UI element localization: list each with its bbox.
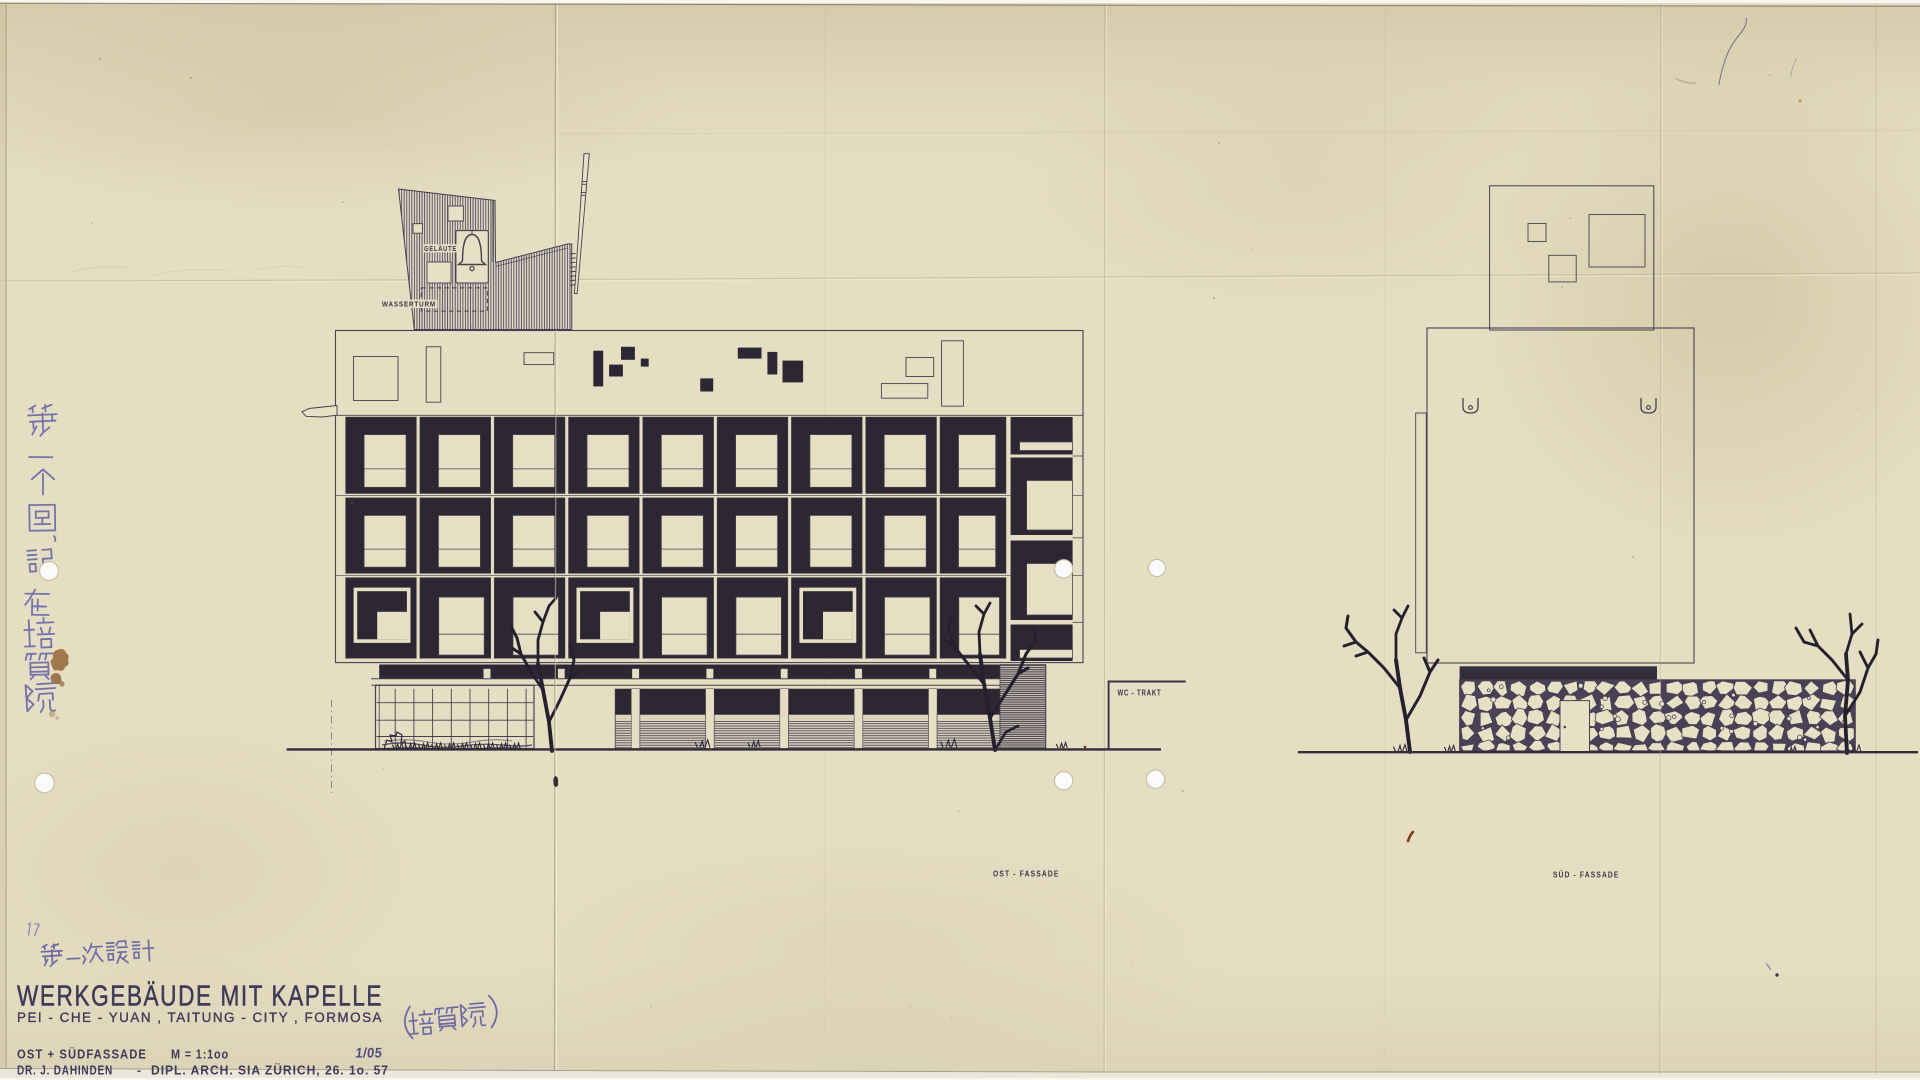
svg-text:PEI - CHE - YUAN , TAITUNG - C: PEI - CHE - YUAN , TAITUNG - CITY , FORM… [17,1010,383,1025]
svg-text:WASSERTURM: WASSERTURM [382,300,436,309]
svg-text:1/05: 1/05 [355,1045,384,1061]
svg-text:SÜD - FASSADE: SÜD - FASSADE [1553,871,1620,880]
svg-text:GELÄUTE: GELÄUTE [424,244,457,253]
svg-text:-: - [137,1064,141,1078]
svg-text:OST + SÜDFASSADE: OST + SÜDFASSADE [17,1047,147,1062]
svg-text:OST - FASSADE: OST - FASSADE [993,870,1060,879]
svg-text:M = 1:1oo: M = 1:1oo [171,1048,229,1062]
svg-text:DIPL. ARCH. SIA ZÜRICH, 26. 1: DIPL. ARCH. SIA ZÜRICH, 26. 1o. 57 [151,1063,389,1078]
svg-text:WC - TRAKT: WC - TRAKT [1118,688,1162,697]
svg-text:DR. J. DAHINDEN: DR. J. DAHINDEN [17,1064,113,1078]
svg-text:WERKGEBÄUDE MIT KAPELLE: WERKGEBÄUDE MIT KAPELLE [17,981,383,1013]
